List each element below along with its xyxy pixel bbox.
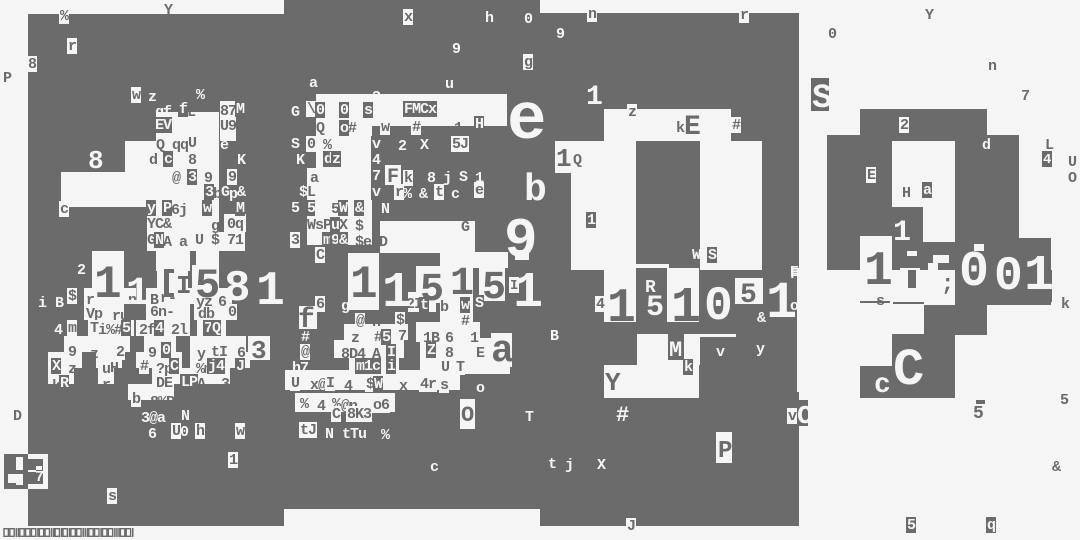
- svg-text:$: $: [211, 232, 220, 249]
- svg-text:j: j: [565, 457, 573, 474]
- svg-text:1: 1: [229, 452, 238, 469]
- svg-text:8%R: 8%R: [150, 394, 175, 411]
- svg-text:9: 9: [504, 209, 538, 273]
- svg-text:qq: qq: [172, 137, 188, 154]
- svg-text:G: G: [461, 219, 470, 236]
- svg-text:O: O: [461, 403, 474, 428]
- svg-text:b: b: [132, 391, 141, 408]
- svg-text:T: T: [456, 359, 465, 376]
- svg-text:tTu: tTu: [342, 426, 366, 443]
- svg-text:M: M: [236, 200, 245, 217]
- svg-text:H: H: [902, 185, 910, 202]
- svg-text:3: 3: [291, 232, 300, 249]
- svg-text:2: 2: [77, 262, 86, 279]
- svg-text:D: D: [13, 408, 22, 425]
- svg-text:0: 0: [316, 102, 325, 119]
- svg-text:E: E: [476, 345, 485, 362]
- svg-text:2l: 2l: [171, 322, 188, 339]
- svg-text:n: n: [588, 6, 597, 23]
- svg-text:R: R: [60, 375, 69, 392]
- svg-text:C: C: [797, 401, 813, 431]
- svg-text:FMCx: FMCx: [404, 101, 437, 118]
- svg-text:v: v: [372, 184, 381, 201]
- svg-text:@: @: [172, 170, 181, 187]
- svg-text:w: w: [381, 119, 390, 136]
- svg-text:a: a: [491, 330, 514, 373]
- svg-text:4r: 4r: [420, 376, 436, 393]
- svg-text:d: d: [324, 151, 332, 168]
- svg-text:A: A: [197, 376, 206, 393]
- svg-text:U: U: [441, 359, 450, 376]
- svg-text:Y: Y: [605, 368, 621, 398]
- svg-text:I: I: [176, 271, 192, 301]
- svg-text:6j: 6j: [171, 202, 187, 219]
- svg-text:d: d: [149, 152, 157, 169]
- svg-text:c: c: [874, 370, 891, 401]
- svg-text:#: #: [732, 117, 741, 134]
- svg-text:w: w: [132, 87, 141, 104]
- svg-text:3@a: 3@a: [141, 410, 166, 427]
- svg-text:8: 8: [28, 56, 37, 73]
- svg-text:6: 6: [148, 426, 157, 443]
- svg-text:7: 7: [1021, 88, 1029, 105]
- svg-text:i: i: [38, 295, 47, 312]
- svg-text:S: S: [459, 169, 468, 186]
- svg-text:1: 1: [864, 245, 893, 299]
- svg-text:5: 5: [1060, 392, 1069, 409]
- svg-text:c: c: [451, 186, 460, 203]
- svg-text:&: &: [757, 310, 766, 327]
- svg-text:2: 2: [398, 138, 407, 155]
- svg-text:8: 8: [224, 264, 250, 314]
- svg-text:o6: o6: [373, 397, 390, 414]
- svg-text:\: \: [307, 101, 316, 118]
- svg-text:r: r: [102, 377, 110, 394]
- svg-text:&: &: [355, 200, 364, 217]
- svg-text:5: 5: [291, 200, 300, 217]
- svg-text:r: r: [740, 7, 748, 24]
- svg-text:6n-: 6n-: [150, 304, 174, 321]
- svg-text:7: 7: [35, 469, 43, 486]
- svg-text:m1c: m1c: [356, 358, 381, 375]
- svg-text:N: N: [181, 408, 190, 425]
- svg-text:$: $: [68, 288, 77, 305]
- svg-text:&: &: [339, 232, 348, 249]
- svg-text:X: X: [420, 137, 429, 154]
- svg-text:2: 2: [900, 117, 909, 134]
- svg-text:P: P: [718, 438, 732, 465]
- svg-text:1: 1: [513, 265, 543, 322]
- svg-text:5: 5: [646, 291, 664, 325]
- svg-text:v: v: [788, 408, 797, 425]
- svg-text:#: #: [412, 119, 421, 136]
- svg-text:x: x: [404, 9, 413, 26]
- svg-text:4: 4: [372, 152, 381, 169]
- svg-text:7: 7: [204, 320, 212, 337]
- svg-text:z: z: [68, 361, 76, 378]
- svg-text:Y: Y: [925, 7, 934, 24]
- svg-text:N: N: [381, 201, 390, 218]
- svg-text:h: h: [196, 423, 205, 440]
- svg-text:5J: 5J: [452, 136, 468, 153]
- svg-text:I: I: [326, 375, 334, 392]
- svg-text:9: 9: [148, 345, 157, 362]
- svg-text:x@: x@: [310, 377, 327, 394]
- svg-text:0: 0: [828, 26, 837, 43]
- svg-text:3: 3: [221, 376, 230, 393]
- svg-text:5: 5: [973, 404, 984, 424]
- svg-text:f: f: [298, 305, 315, 336]
- svg-text:O: O: [1068, 170, 1077, 187]
- svg-text:1: 1: [382, 265, 412, 322]
- svg-text:X: X: [597, 457, 606, 474]
- svg-text:Y: Y: [164, 2, 173, 19]
- svg-text:1: 1: [893, 216, 911, 250]
- svg-text:1: 1: [607, 282, 636, 336]
- svg-text:C: C: [170, 358, 179, 375]
- svg-text:#: #: [348, 120, 357, 137]
- svg-text:w: w: [203, 200, 212, 217]
- svg-text:n: n: [988, 58, 997, 75]
- svg-text:4: 4: [216, 358, 225, 375]
- svg-text:1: 1: [671, 280, 701, 337]
- svg-text:z: z: [90, 346, 98, 363]
- svg-text:U9: U9: [220, 118, 237, 135]
- svg-text:v: v: [716, 344, 725, 361]
- svg-text:C: C: [332, 406, 341, 423]
- svg-text:0: 0: [959, 244, 989, 301]
- svg-text:h: h: [485, 10, 494, 27]
- svg-text:0: 0: [180, 424, 189, 441]
- svg-text:8: 8: [188, 152, 197, 169]
- svg-text:$: $: [355, 218, 364, 235]
- svg-text:1: 1: [454, 120, 463, 137]
- svg-text:8K3: 8K3: [347, 406, 372, 423]
- svg-text:c: c: [164, 151, 173, 168]
- svg-text:X: X: [52, 358, 61, 375]
- svg-text:1: 1: [556, 144, 572, 174]
- svg-text:k: k: [404, 170, 413, 187]
- svg-text:L: L: [187, 104, 196, 121]
- svg-text:1: 1: [256, 265, 285, 319]
- svg-text:9: 9: [68, 344, 77, 361]
- svg-text:U: U: [1068, 154, 1077, 171]
- svg-text:1: 1: [766, 274, 797, 333]
- svg-text:0q: 0q: [227, 216, 243, 233]
- svg-text:k: k: [1061, 296, 1070, 313]
- svg-text:Q: Q: [316, 120, 325, 137]
- svg-text:0: 0: [994, 250, 1023, 304]
- svg-text:v: v: [372, 136, 381, 153]
- svg-text:4: 4: [54, 322, 63, 339]
- svg-text:J: J: [236, 358, 244, 375]
- svg-text:1: 1: [1024, 248, 1054, 305]
- svg-text:Z: Z: [427, 342, 436, 359]
- svg-text:8: 8: [88, 146, 104, 176]
- svg-text:c: c: [60, 201, 69, 218]
- svg-text:3: 3: [372, 89, 381, 106]
- svg-text:W: W: [374, 376, 383, 393]
- svg-text:L: L: [307, 184, 316, 201]
- svg-text:i: i: [387, 358, 396, 375]
- svg-text:z: z: [332, 151, 340, 168]
- svg-text:Q: Q: [212, 320, 221, 337]
- svg-text:C: C: [893, 341, 924, 400]
- svg-text:N: N: [325, 426, 334, 443]
- svg-text:j: j: [443, 170, 451, 187]
- svg-text:d: d: [982, 137, 990, 154]
- svg-text:w: w: [236, 423, 245, 440]
- svg-text:b: b: [524, 169, 547, 212]
- svg-text:5: 5: [420, 268, 444, 313]
- svg-text:D: D: [379, 234, 388, 251]
- svg-text:k: k: [684, 359, 693, 376]
- svg-text:s: s: [440, 377, 449, 394]
- svg-text:LP: LP: [181, 374, 198, 391]
- svg-text:5: 5: [122, 320, 131, 337]
- svg-text:S: S: [708, 247, 717, 264]
- svg-text:B: B: [550, 328, 559, 345]
- svg-text:%#: %#: [106, 322, 123, 339]
- svg-text:#: #: [461, 313, 470, 330]
- svg-text:U: U: [195, 232, 204, 249]
- svg-text:#: #: [140, 358, 149, 375]
- svg-text:2f: 2f: [139, 322, 156, 339]
- svg-text:E: E: [867, 167, 876, 184]
- svg-text:U: U: [188, 135, 197, 152]
- svg-text:E: E: [684, 112, 701, 143]
- svg-text:o: o: [476, 380, 485, 397]
- svg-text:s: s: [108, 488, 117, 505]
- svg-text:0: 0: [524, 11, 533, 28]
- svg-text:1: 1: [586, 82, 603, 113]
- svg-text:9: 9: [228, 169, 237, 186]
- svg-text:0: 0: [162, 342, 171, 359]
- svg-text:0: 0: [704, 280, 733, 334]
- svg-text:4: 4: [317, 398, 326, 415]
- svg-text:q: q: [987, 517, 995, 534]
- svg-text:71: 71: [227, 232, 244, 249]
- svg-text:K: K: [296, 152, 305, 169]
- svg-text:G: G: [291, 104, 300, 121]
- svg-text:5: 5: [740, 280, 757, 311]
- svg-text:u: u: [102, 361, 110, 378]
- svg-text:F: F: [387, 166, 399, 189]
- svg-text:4: 4: [155, 320, 164, 337]
- svg-text:EV: EV: [155, 117, 172, 134]
- svg-text:6: 6: [316, 296, 325, 313]
- svg-text:B: B: [55, 295, 64, 312]
- svg-text:&: &: [1052, 459, 1061, 476]
- svg-text:0: 0: [307, 136, 316, 153]
- svg-text:g: g: [341, 298, 350, 315]
- svg-text:j: j: [208, 358, 216, 375]
- svg-text:K: K: [237, 152, 246, 169]
- svg-text:W: W: [692, 247, 701, 264]
- svg-text:u: u: [445, 76, 453, 93]
- svg-text:e: e: [220, 137, 229, 154]
- svg-text:1: 1: [587, 212, 596, 229]
- svg-text:t: t: [435, 184, 443, 201]
- svg-text:S: S: [812, 80, 832, 118]
- svg-text:x: x: [399, 378, 408, 395]
- svg-text:H: H: [475, 116, 483, 133]
- svg-text:W: W: [339, 200, 348, 217]
- svg-text:C: C: [316, 247, 325, 264]
- svg-text:a: a: [923, 182, 932, 199]
- svg-text:7: 7: [398, 328, 406, 345]
- svg-text:9: 9: [556, 26, 565, 43]
- svg-text:DE: DE: [156, 375, 173, 392]
- svg-text:@: @: [301, 344, 310, 361]
- svg-text:YC&: YC&: [147, 216, 172, 233]
- svg-text:4: 4: [344, 378, 353, 395]
- svg-text:tJ: tJ: [300, 422, 316, 439]
- svg-text:M: M: [669, 338, 682, 363]
- svg-text:3: 3: [251, 336, 267, 366]
- svg-text:@: @: [356, 313, 365, 330]
- svg-text:g: g: [524, 54, 533, 71]
- svg-text:m: m: [68, 320, 77, 337]
- svg-text:y: y: [147, 200, 156, 217]
- svg-text:S: S: [291, 136, 300, 153]
- svg-text:z: z: [351, 330, 359, 347]
- svg-text:5: 5: [482, 266, 506, 311]
- svg-text:&: &: [237, 184, 246, 201]
- svg-text:5: 5: [307, 200, 316, 217]
- svg-text:5: 5: [195, 262, 220, 310]
- svg-text:e: e: [507, 83, 547, 158]
- svg-text:4: 4: [596, 296, 605, 313]
- svg-text:5: 5: [907, 517, 916, 534]
- svg-text:r: r: [68, 38, 76, 55]
- svg-text:H: H: [110, 360, 118, 377]
- svg-text:1: 1: [94, 259, 122, 311]
- svg-text:U: U: [291, 375, 300, 392]
- svg-text:3: 3: [188, 169, 197, 186]
- svg-text:9: 9: [452, 41, 461, 58]
- svg-text:#: #: [616, 403, 629, 428]
- svg-text:&: &: [419, 186, 428, 203]
- svg-text:1: 1: [126, 272, 150, 317]
- svg-text:c: c: [430, 459, 439, 476]
- svg-text:Q: Q: [573, 152, 582, 169]
- svg-text:A: A: [163, 234, 172, 251]
- svg-text:0: 0: [340, 102, 349, 119]
- svg-text:$e: $e: [355, 234, 372, 251]
- svg-text:t: t: [548, 456, 556, 473]
- svg-text:1: 1: [450, 262, 474, 307]
- svg-text:J: J: [627, 518, 635, 535]
- svg-text:z: z: [628, 104, 636, 121]
- svg-text:M: M: [236, 101, 245, 118]
- svg-text:T: T: [525, 409, 534, 426]
- svg-text:y: y: [756, 341, 765, 358]
- svg-text:1: 1: [350, 259, 378, 311]
- svg-text:P: P: [3, 70, 12, 87]
- svg-text:a: a: [309, 75, 318, 92]
- svg-text:2: 2: [116, 344, 125, 361]
- svg-text:4: 4: [1043, 152, 1051, 168]
- svg-text:e: e: [475, 182, 484, 199]
- svg-text:s: s: [364, 102, 373, 119]
- svg-text:a: a: [179, 234, 188, 251]
- svg-text:;: ;: [941, 272, 954, 297]
- svg-text:7: 7: [372, 168, 380, 185]
